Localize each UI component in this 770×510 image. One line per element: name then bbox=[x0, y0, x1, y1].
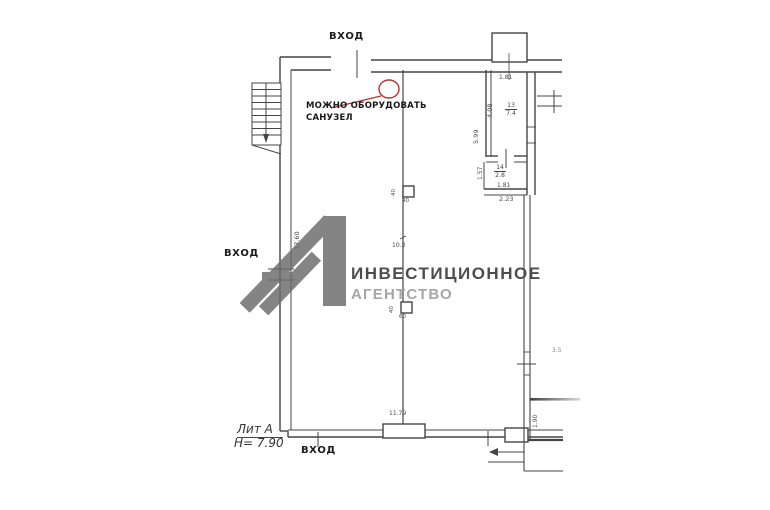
logo-crossbar bbox=[262, 272, 296, 283]
watermark-text-primary: ИНВЕСТИЦИОННОЕ bbox=[351, 264, 542, 284]
floor-plan-page: ВХОД ВХОД ВХОД МОЖНО ОБОРУДОВАТЬ САНУЗЕЛ… bbox=[0, 0, 770, 510]
watermark-text-secondary: АГЕНТСТВО bbox=[351, 286, 453, 303]
watermark-logo-mark bbox=[0, 0, 770, 510]
logo-numeral-one bbox=[323, 216, 346, 306]
logo-slash-long bbox=[240, 215, 335, 312]
